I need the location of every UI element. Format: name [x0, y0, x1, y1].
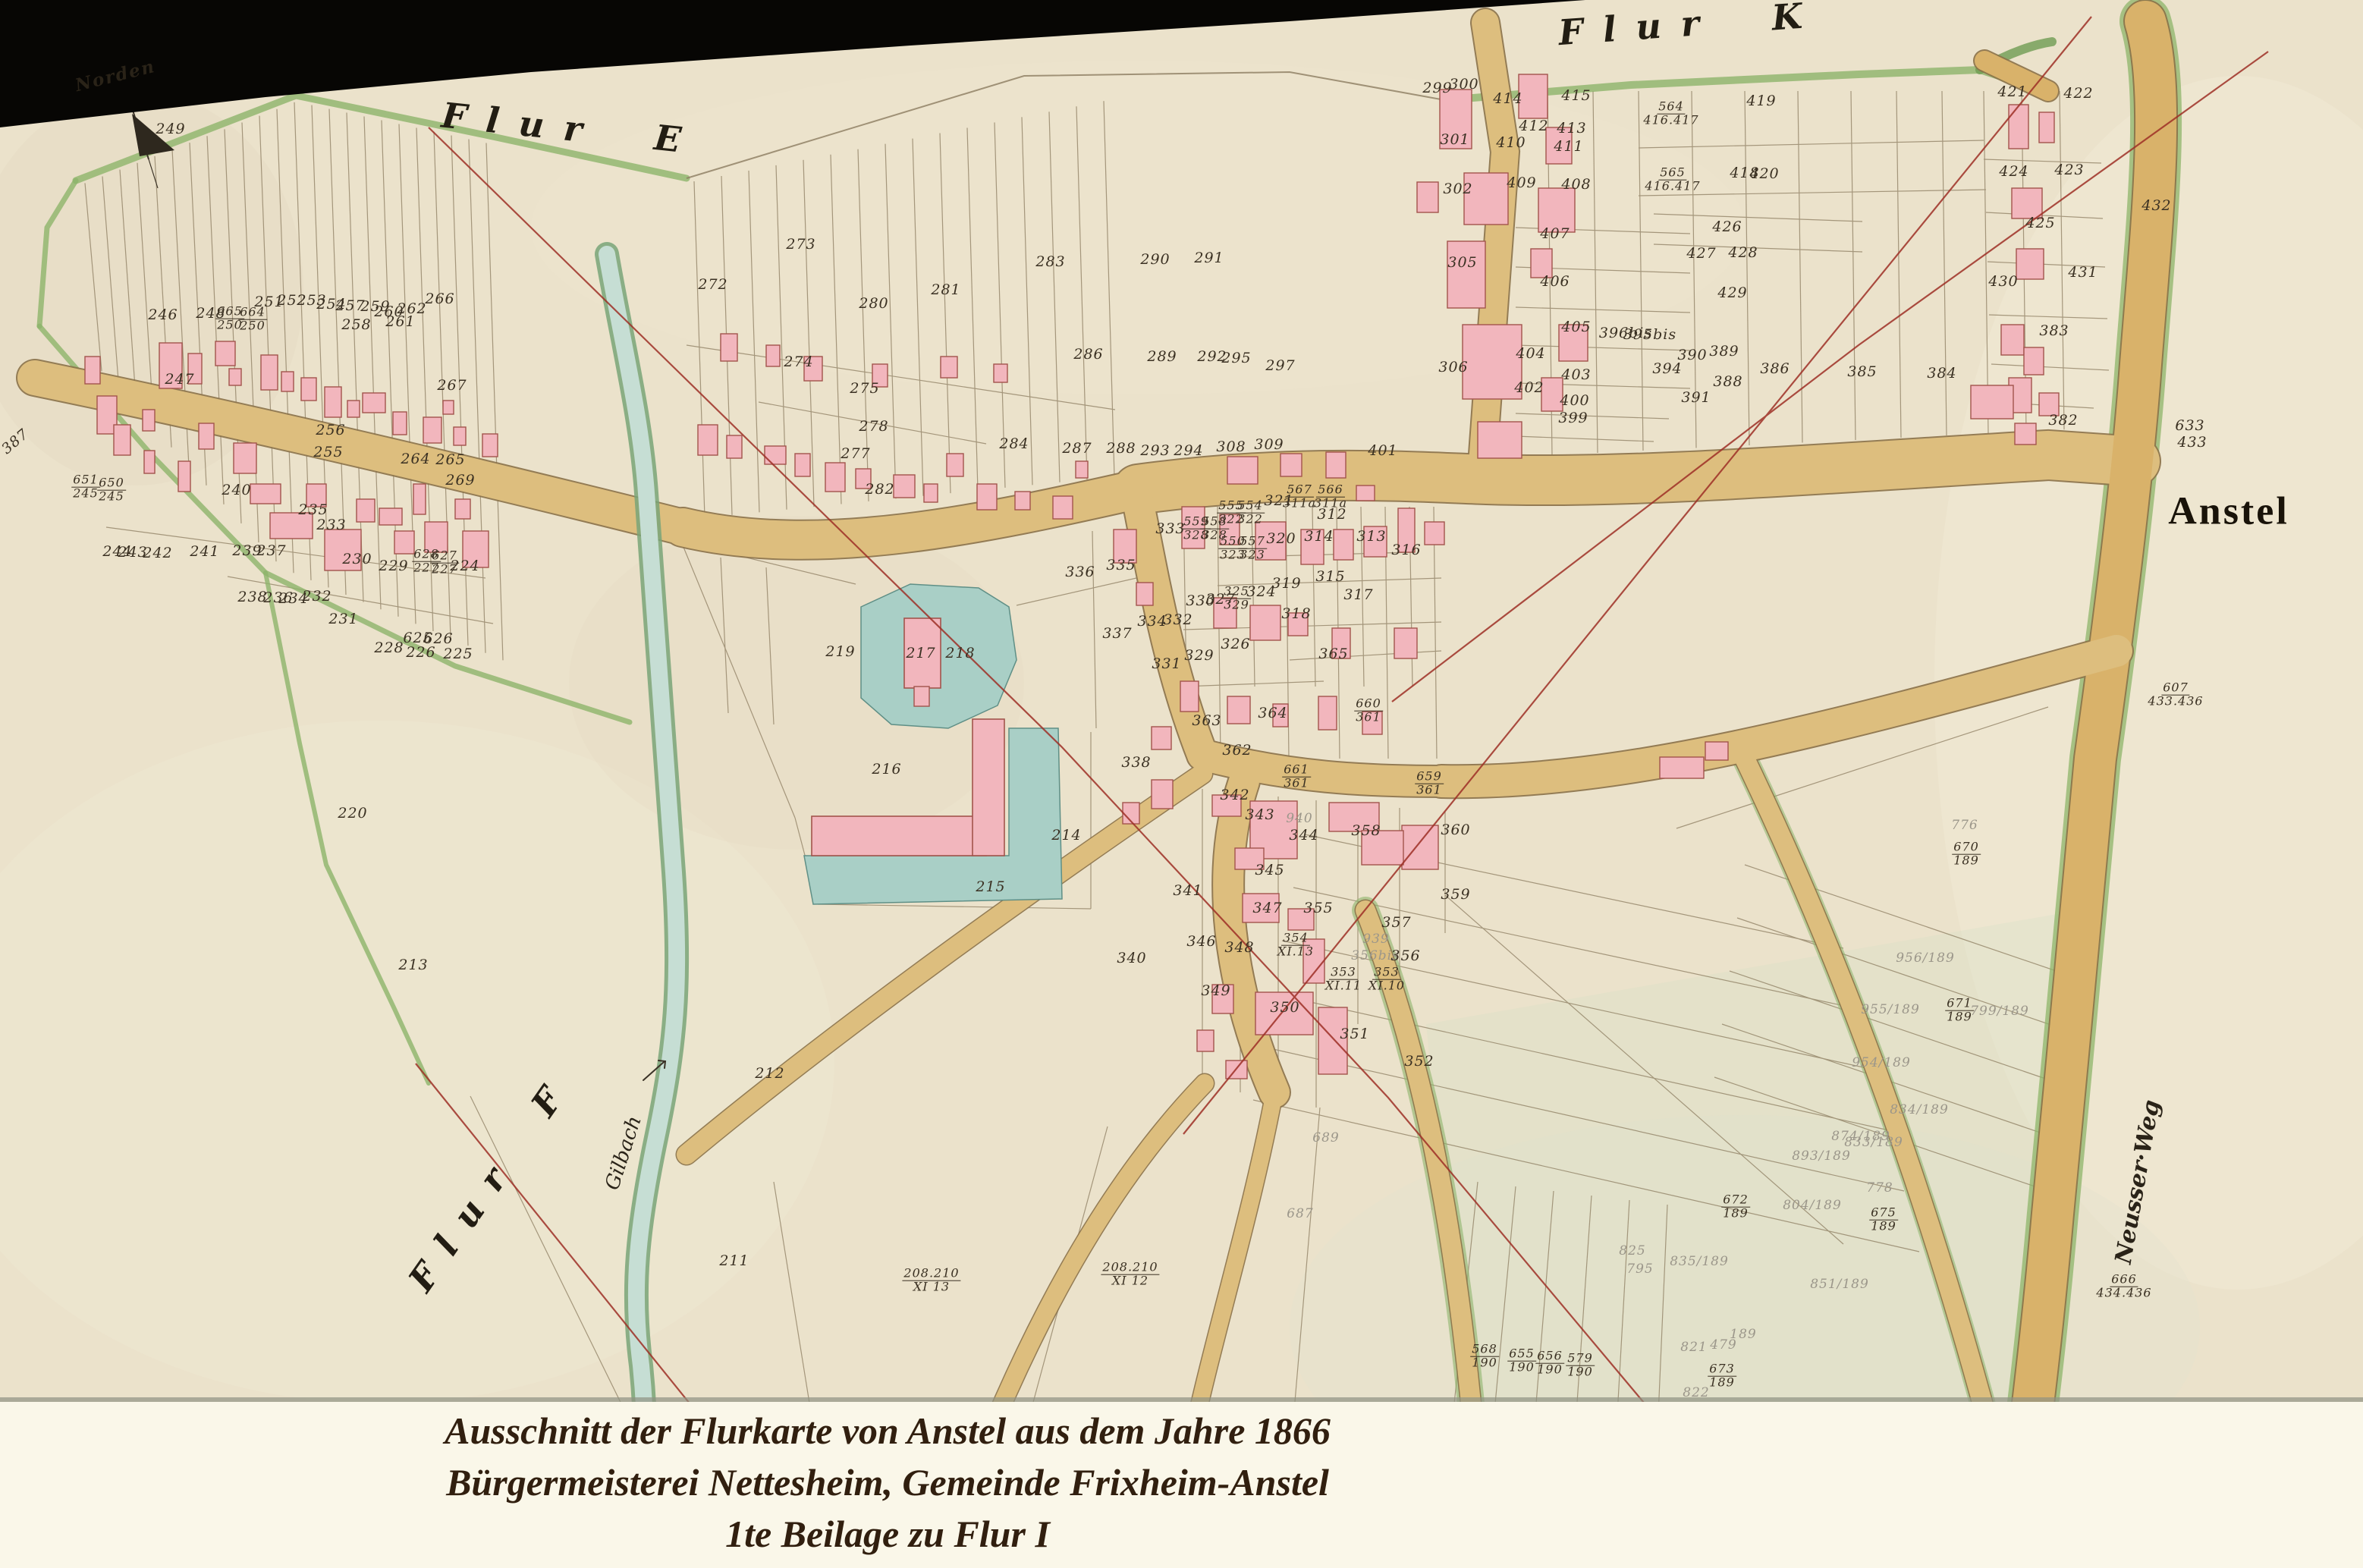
- building-footprint: [1402, 825, 1438, 869]
- building-footprint: [804, 357, 822, 381]
- building-footprint: [1417, 182, 1438, 212]
- building-footprint: [2012, 188, 2042, 218]
- building-footprint: [2039, 112, 2054, 143]
- building-footprint: [825, 463, 845, 492]
- building-footprint: [1250, 605, 1280, 640]
- building-footprint: [379, 508, 402, 525]
- building-footprint: [443, 401, 454, 414]
- building-footprint: [894, 475, 915, 498]
- building-footprint: [1326, 452, 1346, 478]
- building-footprint: [1227, 696, 1250, 724]
- building-footprint: [1398, 508, 1415, 552]
- building-footprint: [325, 387, 341, 417]
- building-footprint: [423, 417, 441, 443]
- building-footprint: [1180, 681, 1199, 712]
- building-footprint: [1463, 325, 1522, 399]
- caption: Ausschnitt der Flurkarte von Anstel aus …: [0, 1405, 1775, 1560]
- building-footprint: [1152, 727, 1171, 749]
- building-footprint: [1538, 188, 1575, 232]
- building-footprint: [363, 393, 385, 413]
- building-footprint: [188, 354, 202, 384]
- building-footprint: [144, 451, 155, 473]
- building-footprint: [1182, 507, 1205, 548]
- building-footprint: [2015, 423, 2036, 445]
- building-footprint: [250, 484, 281, 504]
- building-footprint: [1971, 385, 2013, 419]
- building-footprint: [1425, 522, 1444, 545]
- building-footprint: [766, 345, 780, 366]
- building-footprint: [924, 484, 938, 502]
- building-footprint: [1235, 848, 1264, 869]
- building-footprint: [1243, 894, 1279, 922]
- building-footprint: [872, 364, 888, 387]
- building-footprint: [2016, 249, 2044, 279]
- building-footprint: [143, 410, 155, 431]
- building-footprint: [234, 443, 256, 473]
- building-footprint: [413, 484, 426, 514]
- building-footprint: [1705, 742, 1728, 760]
- building-footprint: [1212, 795, 1241, 816]
- building-footprint: [2001, 325, 2024, 355]
- building-footprint: [2024, 347, 2044, 375]
- building-footprint: [114, 425, 130, 455]
- building-footprint: [347, 401, 360, 417]
- caption-line-3: 1te Beilage zu Flur I: [0, 1508, 1775, 1560]
- building-footprint: [1334, 529, 1353, 560]
- building-footprint: [1362, 712, 1382, 734]
- building-footprint: [795, 454, 810, 476]
- building-footprint: [1394, 628, 1417, 658]
- building-footprint: [947, 454, 963, 476]
- building-footprint: [1015, 492, 1030, 510]
- building-footprint: [1447, 241, 1485, 308]
- building-footprint: [306, 484, 326, 507]
- building-footprint: [1440, 90, 1472, 149]
- flurkarte-map-photo: 2493872462486652506642502512522532542572…: [0, 0, 2363, 1568]
- building-footprint: [199, 423, 214, 449]
- building-footprint: [393, 412, 407, 435]
- building-footprint: [1053, 496, 1073, 519]
- building-footprint: [1364, 526, 1387, 557]
- building-footprint: [178, 461, 190, 492]
- building-footprint: [1329, 803, 1379, 831]
- building-footprint: [325, 529, 361, 570]
- building-footprint: [977, 484, 997, 510]
- building-footprint: [1273, 704, 1288, 727]
- building-footprint: [85, 357, 100, 384]
- building-footprint: [2039, 393, 2059, 416]
- building-footprint: [1531, 249, 1552, 278]
- building-footprint: [1332, 628, 1350, 658]
- building-footprint: [1301, 529, 1324, 564]
- building-footprint: [1136, 583, 1153, 605]
- building-footprint: [270, 513, 313, 539]
- building-footprint: [1212, 985, 1233, 1013]
- building-footprint: [1288, 909, 1314, 930]
- building-footprint: [1478, 422, 1522, 458]
- building-footprint: [1356, 485, 1375, 501]
- building-footprint: [2009, 105, 2028, 149]
- building-footprint: [1197, 1030, 1214, 1051]
- building-footprint: [159, 343, 182, 388]
- building-footprint: [482, 434, 498, 457]
- building-footprint: [357, 499, 375, 522]
- building-footprint: [1114, 529, 1136, 563]
- building-footprint: [1660, 757, 1704, 778]
- building-footprint: [455, 499, 470, 519]
- building-footprint: [1280, 454, 1302, 476]
- building-footprint: [1318, 1007, 1347, 1074]
- building-footprint: [1214, 598, 1236, 628]
- building-footprint: [1303, 939, 1324, 983]
- building-footprint: [765, 446, 786, 464]
- building-footprint: [1362, 831, 1403, 865]
- building-footprint: [463, 531, 489, 567]
- building-footprint: [281, 372, 294, 391]
- building-footprint: [1318, 696, 1337, 730]
- building-footprint: [1519, 74, 1548, 118]
- building-footprint: [941, 357, 957, 378]
- building-footprint: [1227, 457, 1258, 484]
- building-footprint: [301, 378, 316, 401]
- building-footprint: [1255, 522, 1286, 560]
- caption-line-1: Ausschnitt der Flurkarte von Anstel aus …: [0, 1405, 1775, 1456]
- building-footprint: [1255, 992, 1313, 1035]
- building-footprint: [1464, 173, 1508, 225]
- building-footprint: [1546, 127, 1572, 164]
- building-footprint: [1076, 461, 1088, 478]
- building-footprint: [229, 369, 241, 385]
- building-footprint: [856, 469, 871, 489]
- building-footprint: [394, 531, 414, 554]
- building-footprint: [1152, 780, 1173, 809]
- building-footprint: [1559, 325, 1588, 361]
- caption-line-2: Bürgermeisterei Nettesheim, Gemeinde Fri…: [0, 1456, 1775, 1508]
- map-artwork: [0, 0, 2363, 1568]
- building-footprint: [1541, 378, 1563, 411]
- building-footprint: [1288, 613, 1308, 636]
- building-footprint: [454, 427, 466, 445]
- building-footprint: [1220, 514, 1240, 545]
- building-footprint: [261, 355, 278, 390]
- building-footprint: [425, 522, 448, 552]
- building-footprint: [698, 425, 718, 455]
- building-footprint: [727, 435, 742, 458]
- building-footprint: [994, 364, 1007, 382]
- building-footprint: [721, 334, 737, 361]
- building-footprint: [215, 341, 235, 366]
